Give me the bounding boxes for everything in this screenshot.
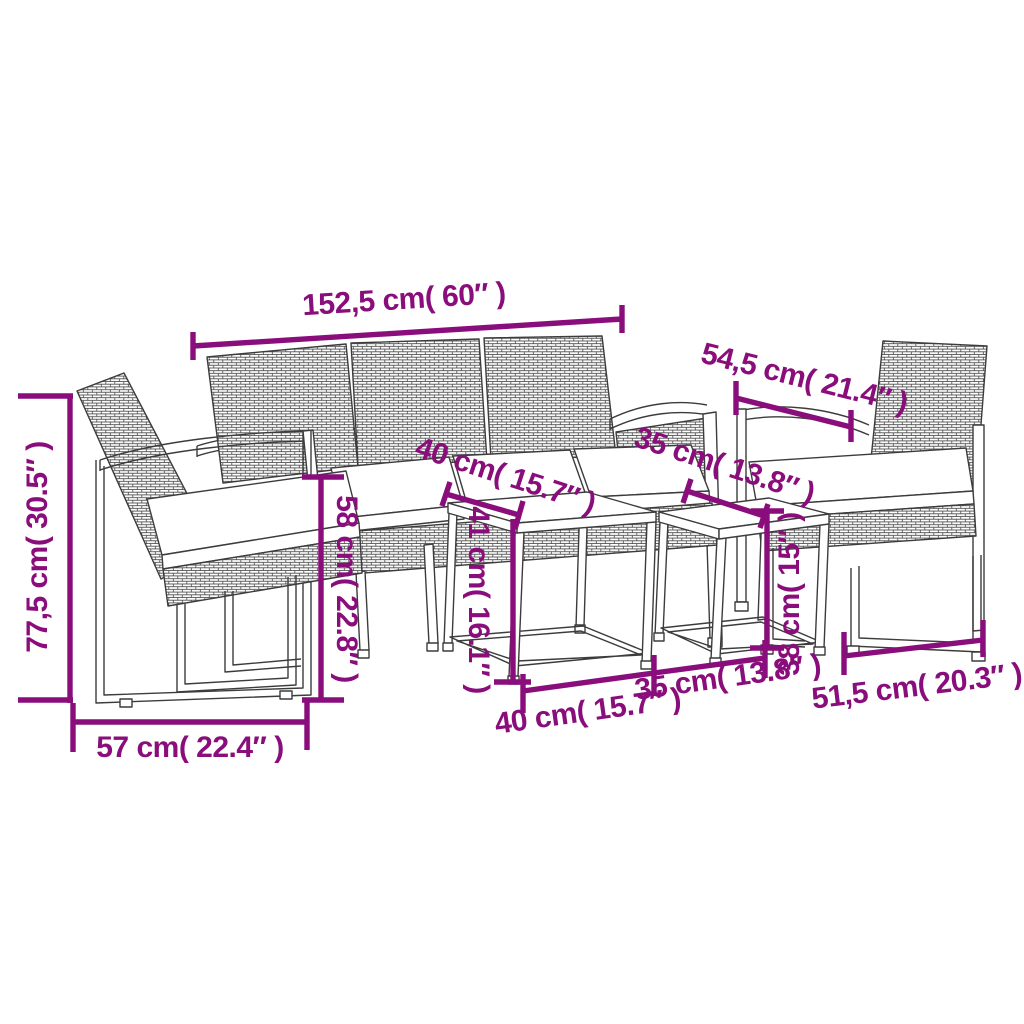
- dim-label: 35 cm( 13.8″ ): [633, 648, 823, 707]
- right-armchair-foot: [735, 602, 748, 611]
- large-table-foot: [443, 643, 453, 651]
- dim-label: 152,5 cm( 60″ ): [301, 277, 506, 323]
- sofa-foot: [427, 643, 438, 651]
- left-armchair-foot: [120, 699, 132, 707]
- right-armchair-leg-loop: [851, 555, 981, 652]
- dim-label: 57 cm( 22.4″ ): [96, 731, 283, 764]
- dim-label: 58 cm( 22.8″ ): [330, 495, 363, 682]
- right-armchair-leg-loop: [859, 556, 973, 643]
- sofa-back-panel: [484, 336, 616, 460]
- dim-armchair-width-left: 57 cm( 22.4″ ): [73, 701, 307, 764]
- dim-label: 77,5 cm( 30.5″ ): [21, 441, 54, 653]
- large-table-foot: [641, 661, 652, 669]
- diagram-canvas: 152,5 cm( 60″ ) 54,5 cm( 21.4″ ) 77,5 cm…: [0, 0, 1024, 1024]
- left-armchair-foot: [280, 691, 292, 699]
- dim-armchair-height: 77,5 cm( 30.5″ ): [18, 396, 73, 703]
- sofa-back-panel: [207, 344, 358, 483]
- dim-label: 41 cm( 16.1″ ): [462, 506, 495, 693]
- dimension-diagram: 152,5 cm( 60″ ) 54,5 cm( 21.4″ ) 77,5 cm…: [0, 0, 1024, 1024]
- dim-armchair-width-right: 51,5 cm( 20.3″ ): [810, 620, 1024, 716]
- small-table-foot: [654, 633, 664, 641]
- left-armchair-leg-loop: [233, 591, 301, 665]
